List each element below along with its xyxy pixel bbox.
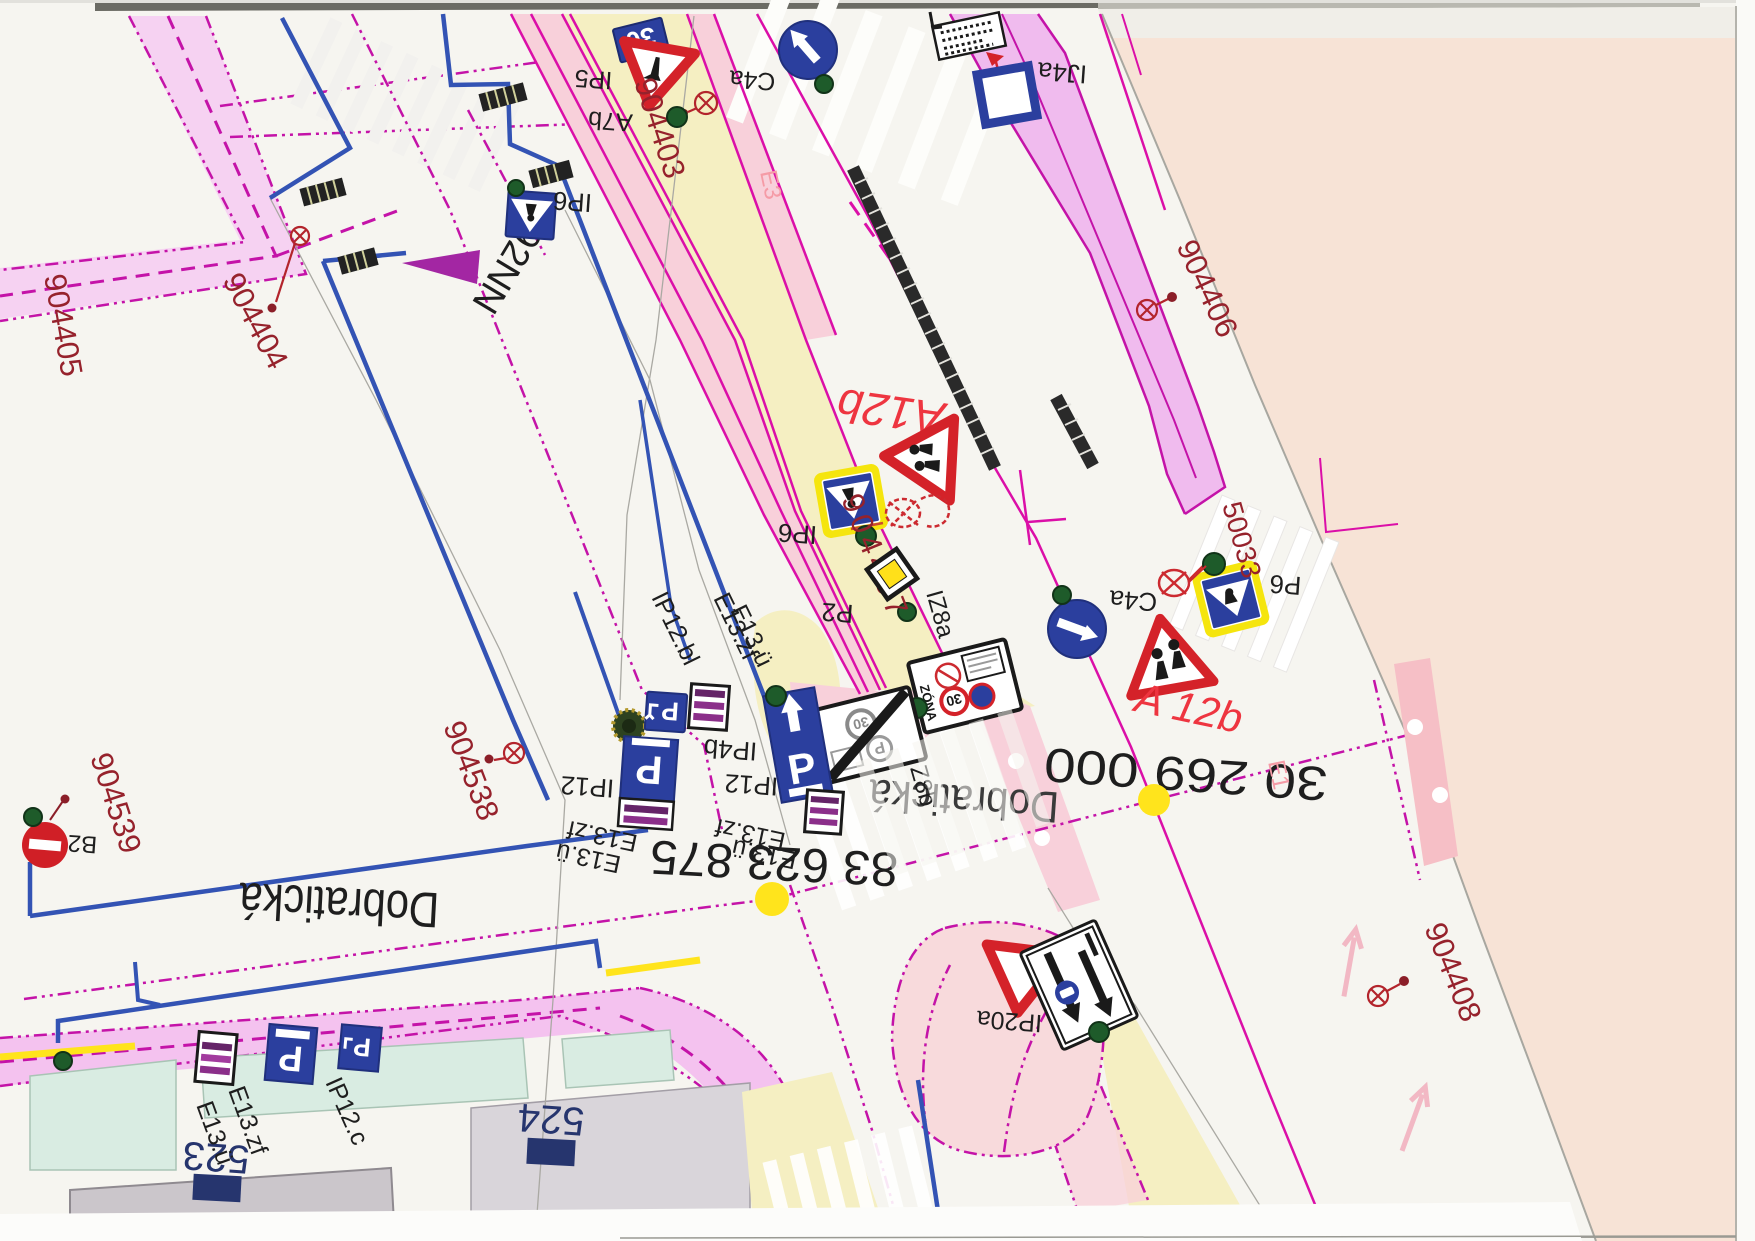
svg-text:524: 524 — [516, 1095, 586, 1144]
svg-text:C4a: C4a — [729, 64, 777, 95]
svg-text:P2: P2 — [820, 597, 854, 629]
svg-text:IP20a: IP20a — [976, 1005, 1043, 1037]
svg-text:P: P — [660, 696, 679, 727]
svg-text:P: P — [352, 1031, 372, 1062]
svg-text:IP6: IP6 — [777, 518, 818, 551]
svg-text:IP5: IP5 — [574, 64, 613, 95]
svg-text:C4a: C4a — [1108, 584, 1158, 617]
svg-text:P: P — [277, 1037, 304, 1080]
svg-text:IP12: IP12 — [724, 768, 779, 802]
svg-text:P: P — [634, 746, 664, 792]
svg-text:IP6: IP6 — [552, 186, 593, 219]
svg-text:A7b: A7b — [587, 105, 633, 136]
svg-text:IJ4a: IJ4a — [1036, 56, 1088, 89]
svg-text:B2: B2 — [67, 829, 98, 858]
svg-text:Dobratická: Dobratická — [238, 872, 441, 938]
svg-text:IP4b: IP4b — [703, 733, 758, 767]
svg-text:P6: P6 — [1268, 569, 1302, 601]
svg-text:IP12: IP12 — [560, 770, 615, 804]
